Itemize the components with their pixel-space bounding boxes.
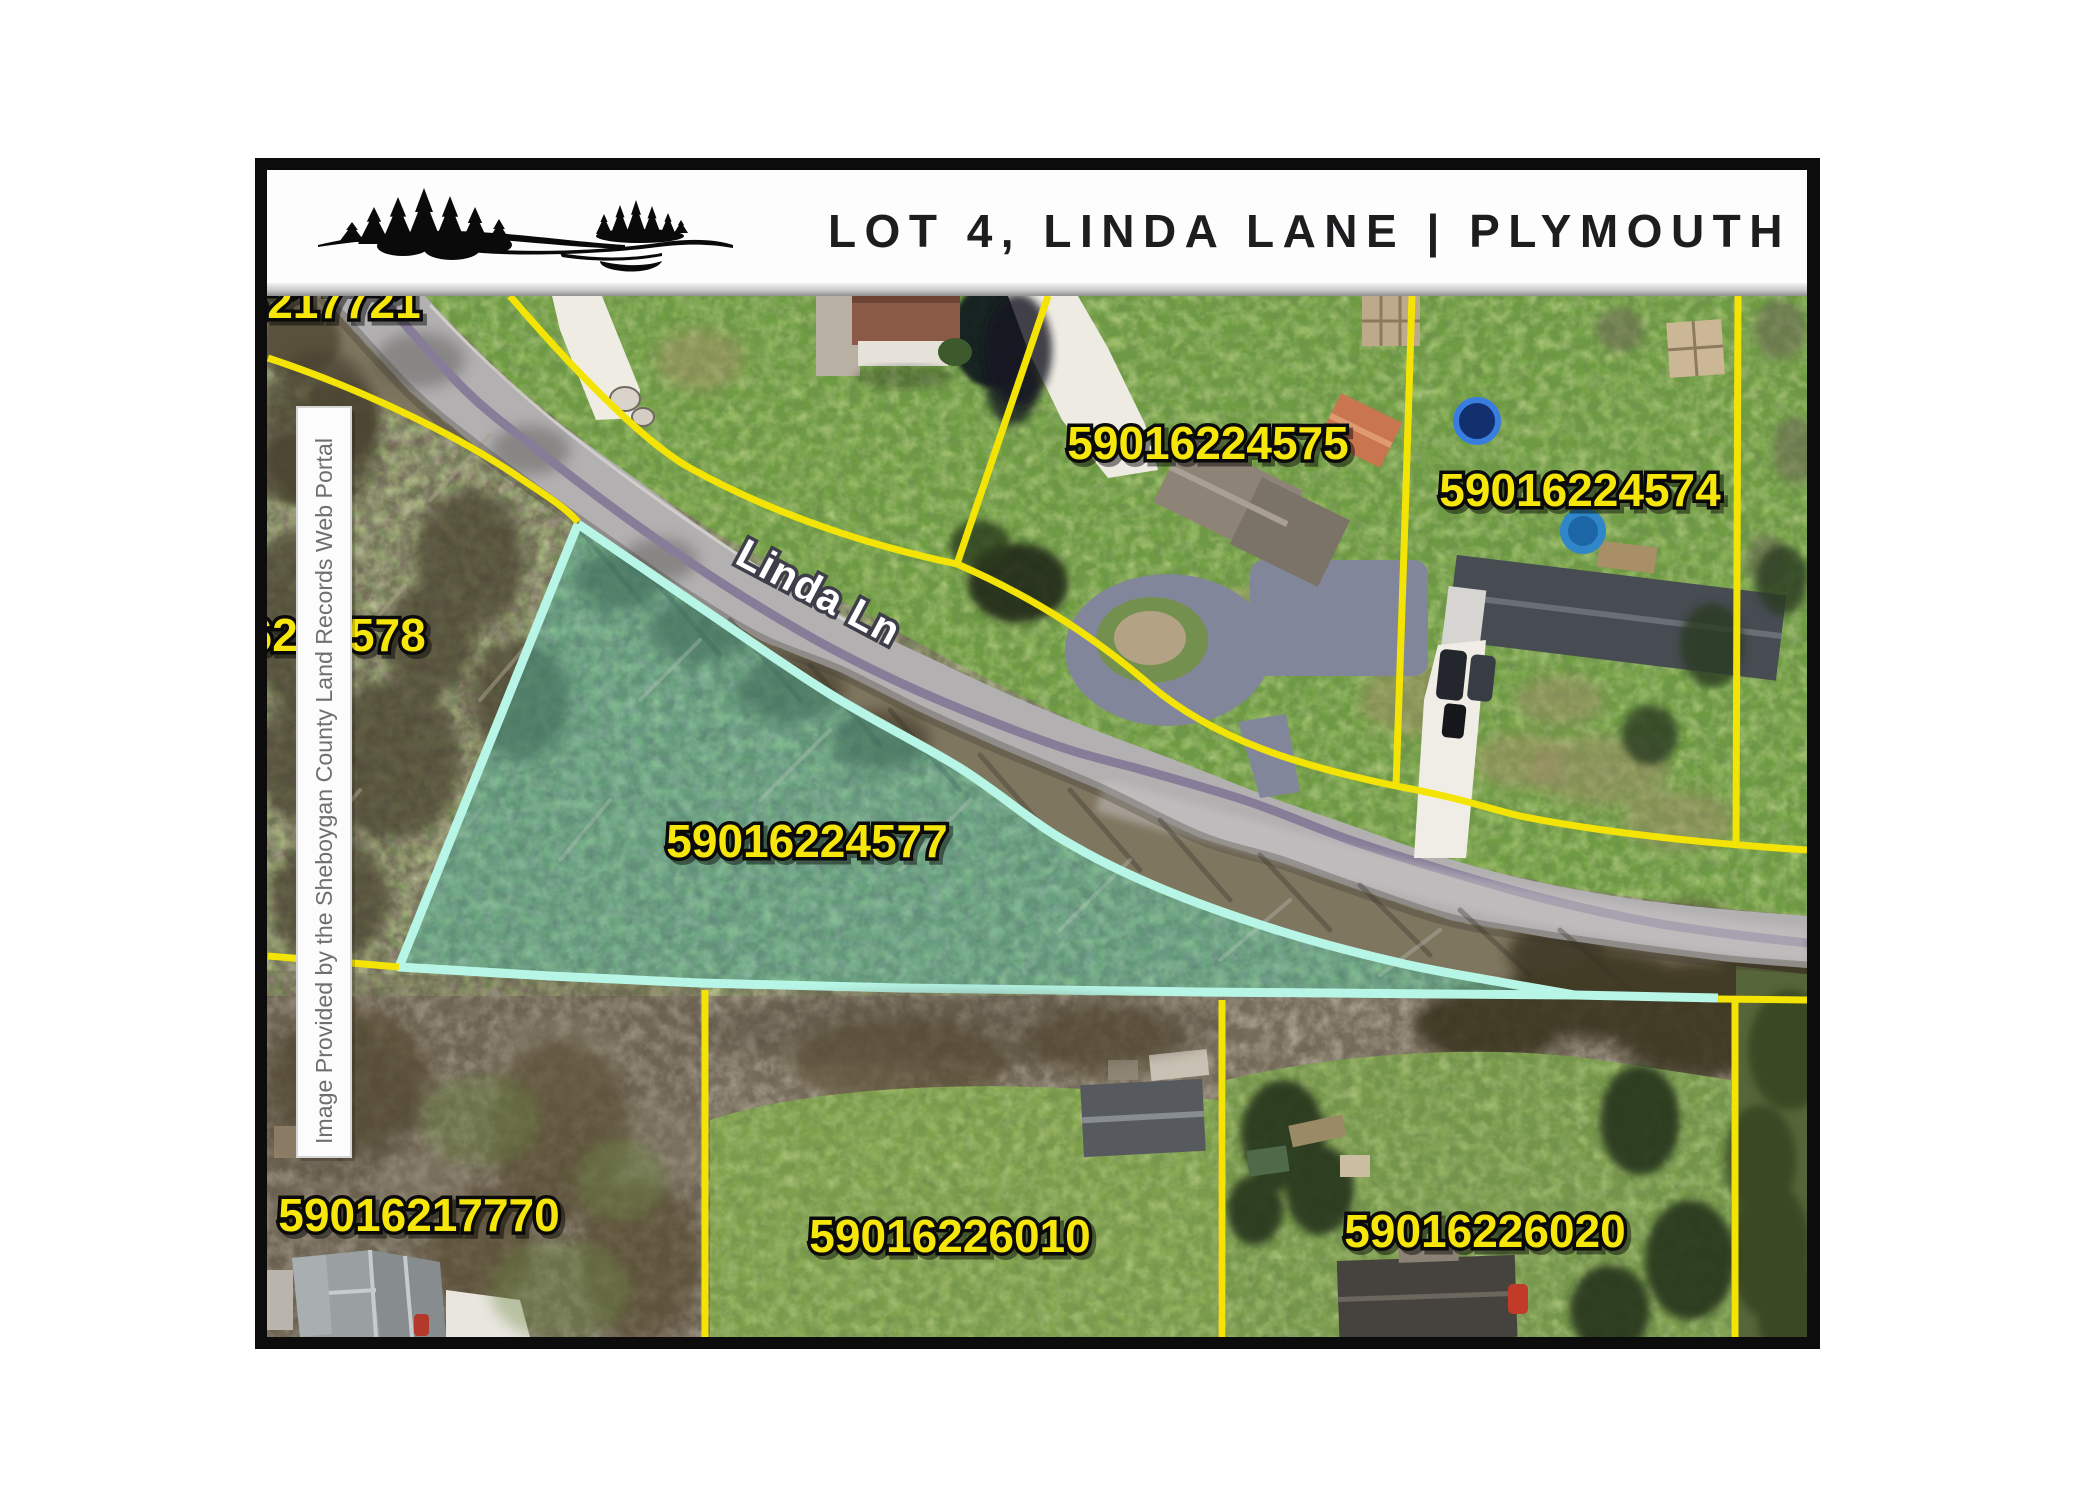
svg-text:59016224575: 59016224575	[1067, 417, 1348, 469]
svg-text:Image Provided by the Sheboyga: Image Provided by the Sheboygan County L…	[311, 438, 337, 1144]
svg-text:59016224574: 59016224574	[1439, 464, 1721, 516]
svg-text:59016226020: 59016226020	[1344, 1205, 1625, 1257]
svg-text:LOT 4, LINDA LANE | PLYMOUTH: LOT 4, LINDA LANE | PLYMOUTH	[828, 205, 1791, 257]
svg-text:59016224577: 59016224577	[666, 815, 947, 867]
svg-text:59016217770: 59016217770	[278, 1189, 559, 1241]
svg-text:59016226010: 59016226010	[809, 1210, 1090, 1262]
